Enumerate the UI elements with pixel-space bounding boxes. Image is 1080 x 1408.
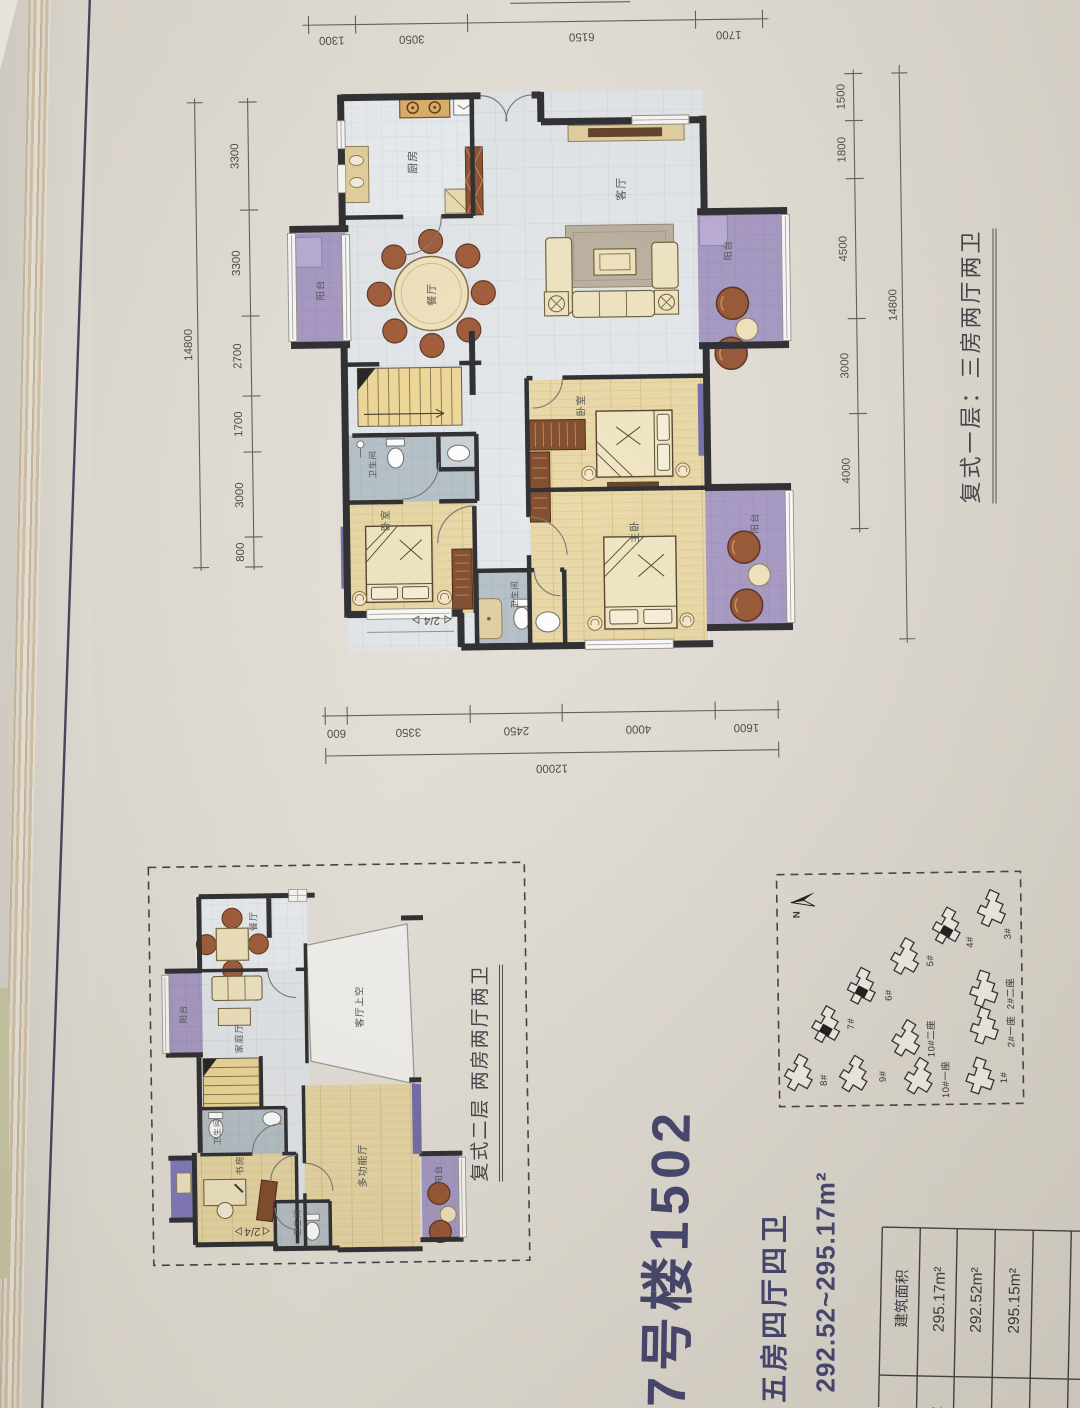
label-bath: 卫生间 [509, 580, 519, 609]
label-living: 客厅 [614, 177, 628, 201]
building-label: 7# [846, 1018, 857, 1030]
building-label: 10#一座 [940, 1061, 953, 1099]
f2-accent-wall [416, 1084, 417, 1154]
dim-total: 12000 [536, 762, 568, 774]
label-dining: 餐厅 [425, 283, 438, 306]
building-label: 8# [819, 1074, 830, 1086]
label-bedroom: 卧室 [574, 394, 587, 416]
dim-total: 14800 [183, 329, 195, 361]
building-label: 2#一座 [1005, 1016, 1017, 1048]
site-buildings [778, 889, 1015, 1101]
dim-value: 6150 [569, 30, 595, 42]
building-label: 5# [925, 955, 936, 967]
site-plan: N 8# 7# 9# 6# 5# [776, 871, 1023, 1106]
label-balcony: 阳台 [178, 1004, 188, 1023]
dim-value: 1800 [836, 137, 848, 163]
area-range: 292.52~295.17m² [811, 1171, 842, 1392]
dim-strip-top [302, 0, 768, 34]
window-tag-text: 2/4 [423, 614, 440, 626]
stairs [357, 367, 462, 426]
building-label: 2#二座 [1004, 978, 1016, 1010]
dim-strip-bottom [322, 701, 781, 764]
north-label: N [791, 911, 802, 919]
area-table: 建筑面积 295.17m² 292.52m² 295.15m² 2 2 2 [878, 1227, 1080, 1408]
dim-value: 800 [235, 542, 247, 561]
dim-value: 600 [327, 727, 346, 739]
label-dining2: 餐厅 [247, 911, 258, 931]
label-balcony: 阳台 [433, 1165, 443, 1184]
dim-labels-top: 1300 3050 6150 1700 [319, 28, 742, 46]
dim-value: 1500 [835, 84, 847, 110]
sofa-main [572, 290, 654, 317]
floor1-title: 复式一层：三房两厅两卫 [954, 228, 997, 503]
label-void: 客厅上空 [353, 985, 366, 1027]
wall-stub [472, 331, 473, 395]
label-balcony: 阳台 [749, 512, 761, 533]
dim-value: 3050 [399, 33, 425, 45]
label-multi: 多功能厅 [356, 1143, 370, 1187]
floor2-title: 复式二层 两房两厅两卫 [465, 964, 503, 1181]
dim-value: 1700 [233, 411, 245, 437]
table-header: 建筑面积 [893, 1269, 911, 1327]
building-label: 9# [878, 1070, 889, 1082]
dim-value: 2700 [232, 343, 244, 369]
floorplan-level1: 1300 3050 6150 1700 3300 3300 2700 1700 … [178, 0, 917, 779]
dim-value: 1600 [734, 721, 760, 733]
label-study: 书房 [234, 1155, 245, 1175]
layout-type: 五房四厅四卫 [753, 1211, 793, 1403]
dim-value: 3000 [234, 482, 246, 508]
label-kitchen: 厨房 [406, 150, 419, 174]
f2-stairs [203, 1058, 260, 1109]
dim-strip-left [187, 98, 264, 571]
label-balcony: 阳台 [722, 240, 734, 261]
dim-value: 4000 [841, 458, 853, 484]
label-bath: 卫生间 [292, 1209, 302, 1236]
dim-total: 14800 [887, 289, 899, 321]
dim-strip-right [844, 65, 915, 644]
balcony-left-detail [296, 237, 322, 267]
dim-value: 3000 [839, 353, 851, 379]
f2-dining-floor [195, 893, 308, 973]
north-arrow: N [791, 892, 815, 918]
dim-value: 3300 [229, 143, 241, 169]
dim-labels-right: 1500 1800 4500 3000 4000 14800 [835, 83, 902, 483]
label-master: 主卧 [628, 520, 641, 543]
photographed-floorplan-page: 1300 3050 6150 1700 3300 3300 2700 1700 … [0, 0, 1080, 1408]
dim-value: 4500 [838, 236, 850, 262]
page-border-line [42, 0, 90, 1408]
label-bath: 卫生间 [212, 1118, 222, 1145]
building-unit-title: 6、7号楼1502 [620, 1106, 706, 1408]
building-label: 10#二座 [925, 1020, 938, 1058]
dim-value: 3350 [396, 726, 422, 738]
label-bedroom: 卧室 [379, 509, 392, 531]
building-label: 4# [965, 936, 976, 948]
dim-labels-left: 3300 3300 2700 1700 3000 800 14800 [180, 143, 247, 562]
window-tag-text: 2/4 [244, 1225, 261, 1237]
building-label: 1# [999, 1071, 1010, 1083]
tv [588, 127, 662, 137]
dim-labels-bottom: 600 3350 2450 4000 1600 12000 [327, 721, 760, 777]
dim-value: 3300 [231, 250, 243, 276]
table-cell: 295.15m² [1006, 1268, 1024, 1334]
table-cell: 295.17m² [931, 1266, 949, 1332]
dim-value: 1700 [716, 28, 742, 40]
dim-value: 2450 [504, 724, 530, 736]
building-label: 6# [884, 989, 895, 1001]
table-cell: 292.52m² [968, 1267, 986, 1333]
building-label: 3# [1003, 927, 1014, 939]
sofa-right [652, 242, 679, 288]
plan-graphics: 1300 3050 6150 1700 3300 3300 2700 1700 … [0, 0, 1080, 1408]
label-balcony: 阳台 [315, 279, 327, 300]
label-family: 家庭厅 [233, 1023, 244, 1053]
label-bath: 卫生间 [367, 450, 377, 479]
dim-value: 1300 [319, 34, 345, 46]
dim-value: 4000 [626, 722, 652, 734]
